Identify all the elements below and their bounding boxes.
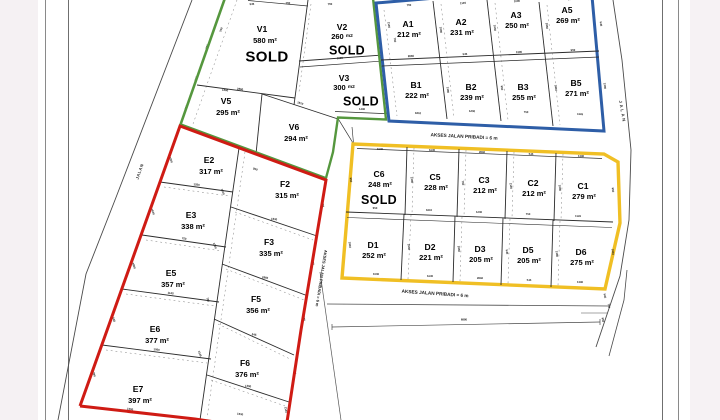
svg-text:C6: C6 [374, 169, 385, 179]
svg-text:E6: E6 [150, 324, 161, 334]
svg-text:279 m²: 279 m² [572, 192, 596, 201]
svg-text:1000: 1000 [558, 185, 563, 192]
svg-text:SOLD: SOLD [361, 193, 397, 207]
svg-text:C3: C3 [479, 175, 490, 185]
svg-text:221 m²: 221 m² [419, 253, 443, 262]
svg-text:397 m²: 397 m² [128, 396, 152, 405]
svg-text:2860: 2860 [477, 276, 484, 280]
svg-text:1200: 1200 [603, 83, 608, 90]
svg-text:1145: 1145 [387, 22, 392, 29]
svg-text:356 m²: 356 m² [246, 306, 270, 315]
svg-text:231 m²: 231 m² [450, 28, 474, 37]
svg-text:950: 950 [373, 206, 378, 210]
svg-text:580 m²: 580 m² [253, 36, 277, 45]
svg-text:750: 750 [524, 110, 529, 114]
svg-text:2860: 2860 [408, 54, 415, 58]
svg-text:A3: A3 [511, 10, 522, 20]
svg-text:317 m²: 317 m² [199, 167, 223, 176]
svg-text:250 m²: 250 m² [505, 21, 529, 30]
svg-text:950: 950 [611, 187, 616, 193]
svg-text:1390: 1390 [446, 87, 451, 94]
svg-text:A1: A1 [403, 19, 414, 29]
svg-text:255 m²: 255 m² [512, 93, 536, 102]
svg-text:275 m²: 275 m² [570, 258, 594, 267]
svg-text:252 m²: 252 m² [362, 251, 386, 260]
svg-text:750: 750 [327, 2, 332, 6]
svg-text:1000: 1000 [373, 272, 380, 276]
svg-text:212 m²: 212 m² [473, 186, 497, 195]
svg-text:1000: 1000 [514, 0, 521, 3]
svg-text:545: 545 [599, 21, 604, 27]
svg-text:1810: 1810 [426, 208, 433, 212]
svg-text:750: 750 [406, 3, 411, 7]
svg-text:C2: C2 [528, 178, 539, 188]
svg-text:212 m²: 212 m² [522, 189, 546, 198]
svg-text:750: 750 [393, 37, 398, 43]
svg-text:1390: 1390 [578, 154, 585, 158]
svg-text:271 m²: 271 m² [565, 89, 589, 98]
svg-text:V3: V3 [339, 73, 350, 83]
svg-text:V1: V1 [257, 24, 268, 34]
svg-text:2860: 2860 [479, 150, 486, 154]
svg-text:357 m²: 357 m² [161, 280, 185, 289]
svg-text:1390: 1390 [516, 50, 523, 54]
svg-text:1810: 1810 [415, 111, 422, 115]
svg-text:222 m²: 222 m² [405, 91, 429, 100]
svg-text:E2: E2 [204, 155, 215, 165]
svg-text:A5: A5 [562, 5, 573, 15]
svg-text:239 m²: 239 m² [460, 93, 484, 102]
svg-text:1810: 1810 [611, 249, 616, 256]
svg-text:1200: 1200 [469, 109, 476, 113]
svg-text:212 m²: 212 m² [397, 30, 421, 39]
svg-text:1810: 1810 [348, 242, 353, 249]
svg-text:D2: D2 [425, 242, 436, 252]
svg-text:545: 545 [527, 278, 532, 282]
svg-text:1200: 1200 [410, 177, 415, 184]
svg-text:376 m²: 376 m² [235, 370, 259, 379]
svg-text:B2: B2 [466, 82, 477, 92]
svg-text:545: 545 [463, 52, 468, 56]
svg-text:SOLD: SOLD [245, 49, 288, 66]
svg-text:228 m²: 228 m² [424, 183, 448, 192]
svg-text:205 m²: 205 m² [469, 255, 493, 264]
svg-text:1000: 1000 [439, 27, 444, 34]
svg-text:545: 545 [249, 2, 254, 6]
svg-text:269 m²: 269 m² [556, 16, 580, 25]
svg-text:E3: E3 [186, 210, 197, 220]
svg-text:545: 545 [505, 249, 510, 255]
svg-text:F3: F3 [264, 237, 274, 247]
svg-text:D5: D5 [523, 245, 534, 255]
svg-text:D3: D3 [475, 244, 486, 254]
svg-text:B5: B5 [571, 78, 582, 88]
svg-text:2860: 2860 [545, 23, 550, 30]
svg-text:1145: 1145 [577, 112, 584, 116]
svg-text:1630: 1630 [337, 56, 344, 60]
svg-text:F6: F6 [240, 358, 250, 368]
svg-text:V5: V5 [221, 96, 232, 106]
svg-text:V2: V2 [337, 22, 348, 32]
svg-text:1000: 1000 [377, 147, 384, 151]
svg-text:750: 750 [285, 1, 290, 5]
svg-text:B3: B3 [518, 82, 529, 92]
svg-text:1630: 1630 [427, 274, 434, 278]
svg-text:B1: B1 [411, 80, 422, 90]
svg-text:C5: C5 [430, 172, 441, 182]
svg-text:V6: V6 [289, 122, 300, 132]
svg-text:1490: 1490 [359, 107, 366, 111]
svg-text:D1: D1 [368, 240, 379, 250]
svg-text:1145: 1145 [509, 183, 514, 190]
svg-text:950: 950 [571, 48, 576, 52]
svg-text:950: 950 [349, 177, 354, 183]
svg-text:248 m²: 248 m² [368, 180, 392, 189]
svg-text:545: 545 [529, 152, 534, 156]
svg-text:F2: F2 [280, 179, 290, 189]
svg-text:1390: 1390 [577, 280, 584, 284]
svg-text:377 m²: 377 m² [145, 336, 169, 345]
svg-text:E5: E5 [166, 268, 177, 278]
svg-text:295 m²: 295 m² [216, 108, 240, 117]
svg-text:SOLD: SOLD [329, 44, 365, 58]
svg-text:F5: F5 [251, 294, 261, 304]
svg-text:1630: 1630 [429, 148, 436, 152]
svg-text:C1: C1 [578, 181, 589, 191]
svg-text:750: 750 [526, 212, 531, 216]
svg-text:338 m²: 338 m² [181, 222, 205, 231]
svg-text:1200: 1200 [476, 210, 483, 214]
svg-text:6880: 6880 [461, 318, 468, 322]
svg-text:335 m²: 335 m² [259, 249, 283, 258]
svg-text:1145: 1145 [460, 1, 467, 5]
svg-text:950: 950 [500, 85, 505, 91]
svg-text:1810: 1810 [554, 85, 559, 92]
svg-text:1630: 1630 [493, 25, 498, 32]
svg-text:D6: D6 [576, 247, 587, 257]
svg-text:E7: E7 [133, 384, 144, 394]
svg-text:1390: 1390 [555, 251, 560, 258]
svg-text:315 m²: 315 m² [275, 191, 299, 200]
svg-text:1630: 1630 [407, 244, 412, 251]
svg-text:294 m²: 294 m² [284, 134, 308, 143]
svg-text:2860: 2860 [457, 246, 462, 253]
svg-text:750: 750 [461, 180, 466, 186]
svg-text:205 m²: 205 m² [517, 256, 541, 265]
svg-text:A2: A2 [456, 17, 467, 27]
svg-text:1145: 1145 [575, 214, 582, 218]
